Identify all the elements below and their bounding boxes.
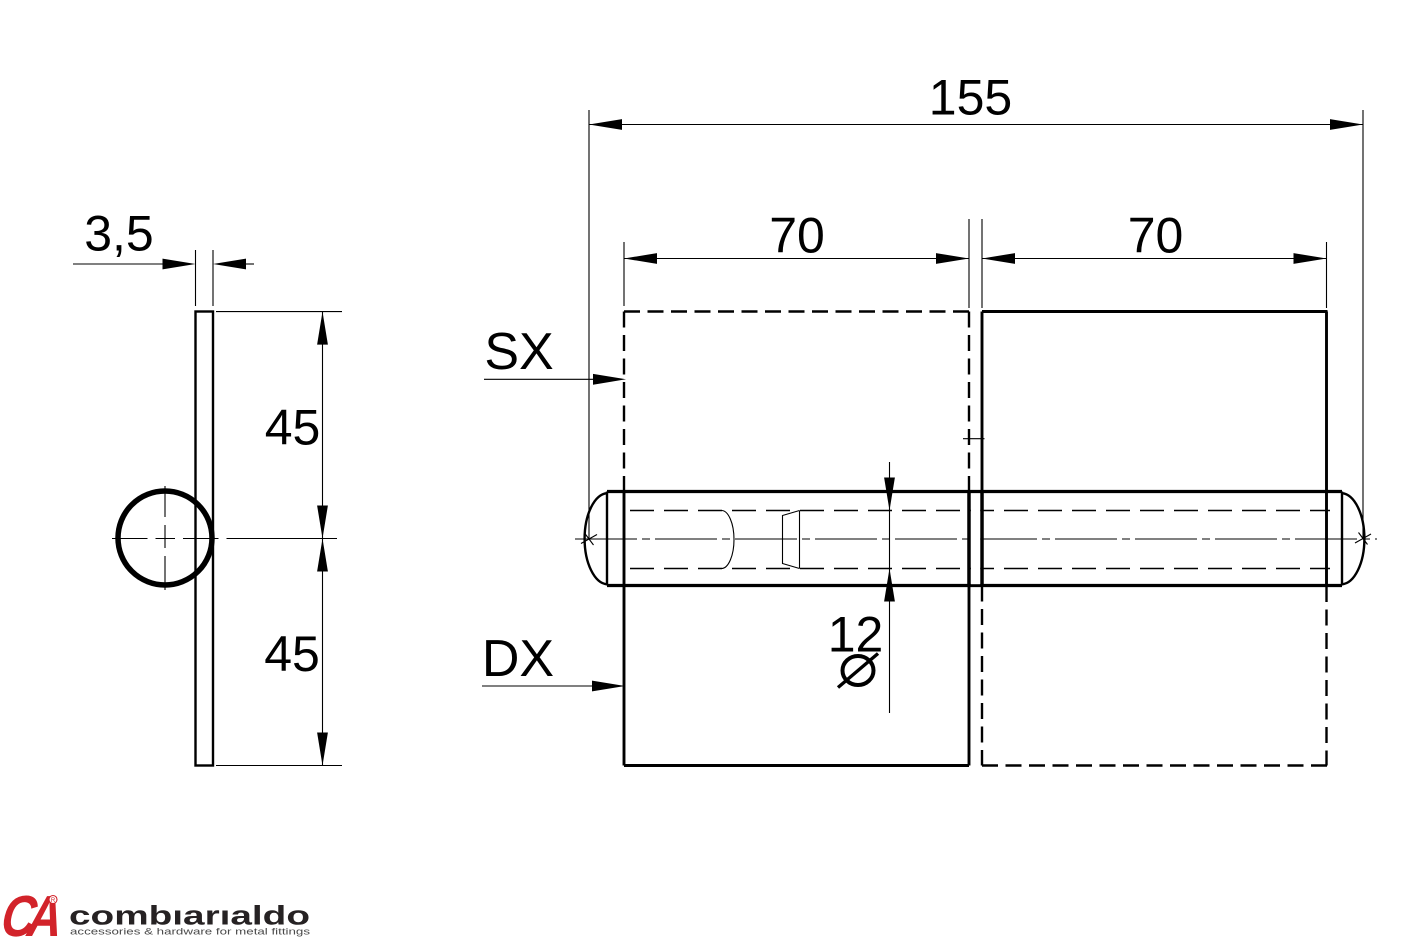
svg-text:R: R — [51, 898, 56, 904]
svg-text:3,5: 3,5 — [84, 206, 154, 262]
svg-text:70: 70 — [1128, 208, 1184, 264]
svg-text:45: 45 — [264, 626, 320, 682]
svg-text:45: 45 — [265, 400, 321, 456]
svg-text:DX: DX — [482, 630, 554, 688]
svg-text:SX: SX — [484, 323, 553, 381]
svg-text:accessories & hardware for met: accessories & hardware for metal fitting… — [70, 927, 310, 938]
svg-text:70: 70 — [769, 207, 825, 263]
svg-text:155: 155 — [929, 70, 1012, 126]
